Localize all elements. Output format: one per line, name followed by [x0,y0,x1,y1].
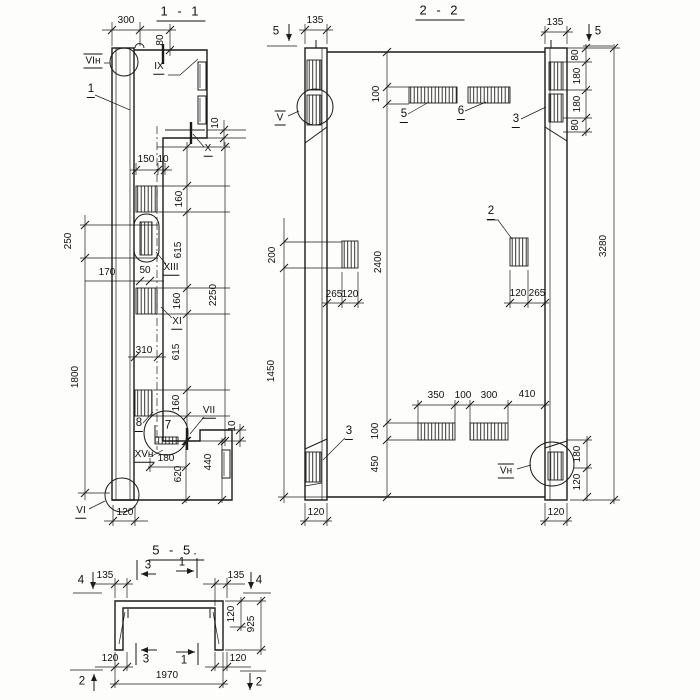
dim-100-top: 100 [372,86,382,103]
cut-marker-3-bot: 3 [143,654,149,666]
dim-180-br: 180 [573,446,583,463]
dim-120-bl: 120 [102,654,119,664]
part-label-1: 1 [87,84,95,98]
section-2-2-linework [267,24,620,526]
dim-135-r5: 135 [228,571,245,581]
dim-450: 450 [371,456,381,473]
detail-label-vi-n: VIн [84,54,103,69]
part-label-2: 2 [487,206,495,220]
dim-180-b: 180 [573,96,583,113]
dim-3280: 3280 [599,235,609,257]
dim-1970: 1970 [156,671,178,681]
dim-120-br5: 120 [230,654,247,664]
section-2-2-title: 2 - 2 [415,4,464,21]
part-label-5: 5 [400,109,408,123]
dim-100-m: 100 [455,391,472,401]
dim-350: 350 [428,391,445,401]
dim-50: 50 [139,266,150,276]
dim-1800: 1800 [71,366,81,388]
dim-410: 410 [519,390,536,400]
dim-10-w: 10 [157,155,168,165]
dim-2250: 2250 [209,284,219,306]
detail-label-v-n: Vн [498,464,514,479]
part-label-6: 6 [457,106,465,120]
dim-250: 250 [64,233,74,250]
dim-180-a: 180 [573,68,583,85]
detail-label-xi: XI [171,317,182,330]
detail-label-vi: VI [75,506,86,519]
dim-180: 180 [158,454,175,464]
cut-marker-4-left: 4 [78,575,84,587]
dim-615-b: 615 [172,344,182,361]
dim-170: 170 [99,268,116,278]
dim-300-b: 300 [481,391,498,401]
dim-300: 300 [118,16,135,26]
technical-drawing-canvas: 1 - 1 2 - 2 5 - 5. 300 80 10 150 10 160 … [0,0,700,700]
detail-label-v: V [275,111,286,126]
dim-135-right: 135 [547,18,564,28]
dim-1450: 1450 [267,360,277,382]
part-label-8: 8 [135,418,143,432]
dim-135-left: 135 [307,16,324,26]
detail-label-vii: VII [202,406,216,419]
dim-135-l5: 135 [97,571,114,581]
dim-615-a: 615 [174,242,184,259]
dim-120-col-r: 120 [548,508,565,518]
cut-marker-1-top: 1 [179,557,185,569]
section-5-5-title: 5 - 5. [148,544,204,561]
dim-10-b: 10 [228,420,238,431]
dim-160-b: 160 [173,293,183,310]
detail-label-xiii: XIII [162,263,179,276]
dim-120-l: 120 [342,290,359,300]
dim-80-b: 80 [571,119,581,130]
dim-440: 440 [204,454,214,471]
drawing-linework [0,0,700,700]
dim-265-r: 265 [529,289,546,299]
dim-310: 310 [136,346,153,356]
part-label-3-top: 3 [512,114,520,128]
detail-label-x: X [204,144,213,157]
cut-marker-5-right: 5 [595,26,601,38]
cut-marker-5-left: 5 [273,26,279,38]
dim-120-r: 120 [510,289,527,299]
dim-120-t5: 120 [227,606,237,623]
detail-label-ix: IX [153,62,164,75]
dim-160-c: 160 [172,395,182,412]
dim-100-b: 100 [371,423,381,440]
dim-925: 925 [247,616,257,633]
dim-265-l: 265 [326,290,343,300]
dim-10-step: 10 [211,117,221,128]
section-1-1-title: 1 - 1 [156,5,205,22]
cut-marker-1-bot: 1 [181,655,187,667]
dim-80: 80 [156,34,166,45]
dim-2400: 2400 [374,251,384,273]
dim-120-col-l: 120 [308,508,325,518]
dim-200: 200 [268,247,278,264]
dim-120-br: 120 [573,474,583,491]
dim-160-a: 160 [175,191,185,208]
part-label-3-bot: 3 [345,426,353,440]
detail-label-xv-n: XVн [134,450,155,463]
cut-marker-2-left: 2 [79,676,85,688]
dim-80-a: 80 [571,49,581,60]
part-label-7: 7 [165,420,171,432]
cut-marker-4-right: 4 [256,575,262,587]
dim-620: 620 [174,466,184,483]
cut-marker-2-right: 2 [256,677,262,689]
dim-150: 150 [138,155,155,165]
cut-marker-3-top: 3 [145,560,151,572]
dim-120: 120 [117,508,134,518]
